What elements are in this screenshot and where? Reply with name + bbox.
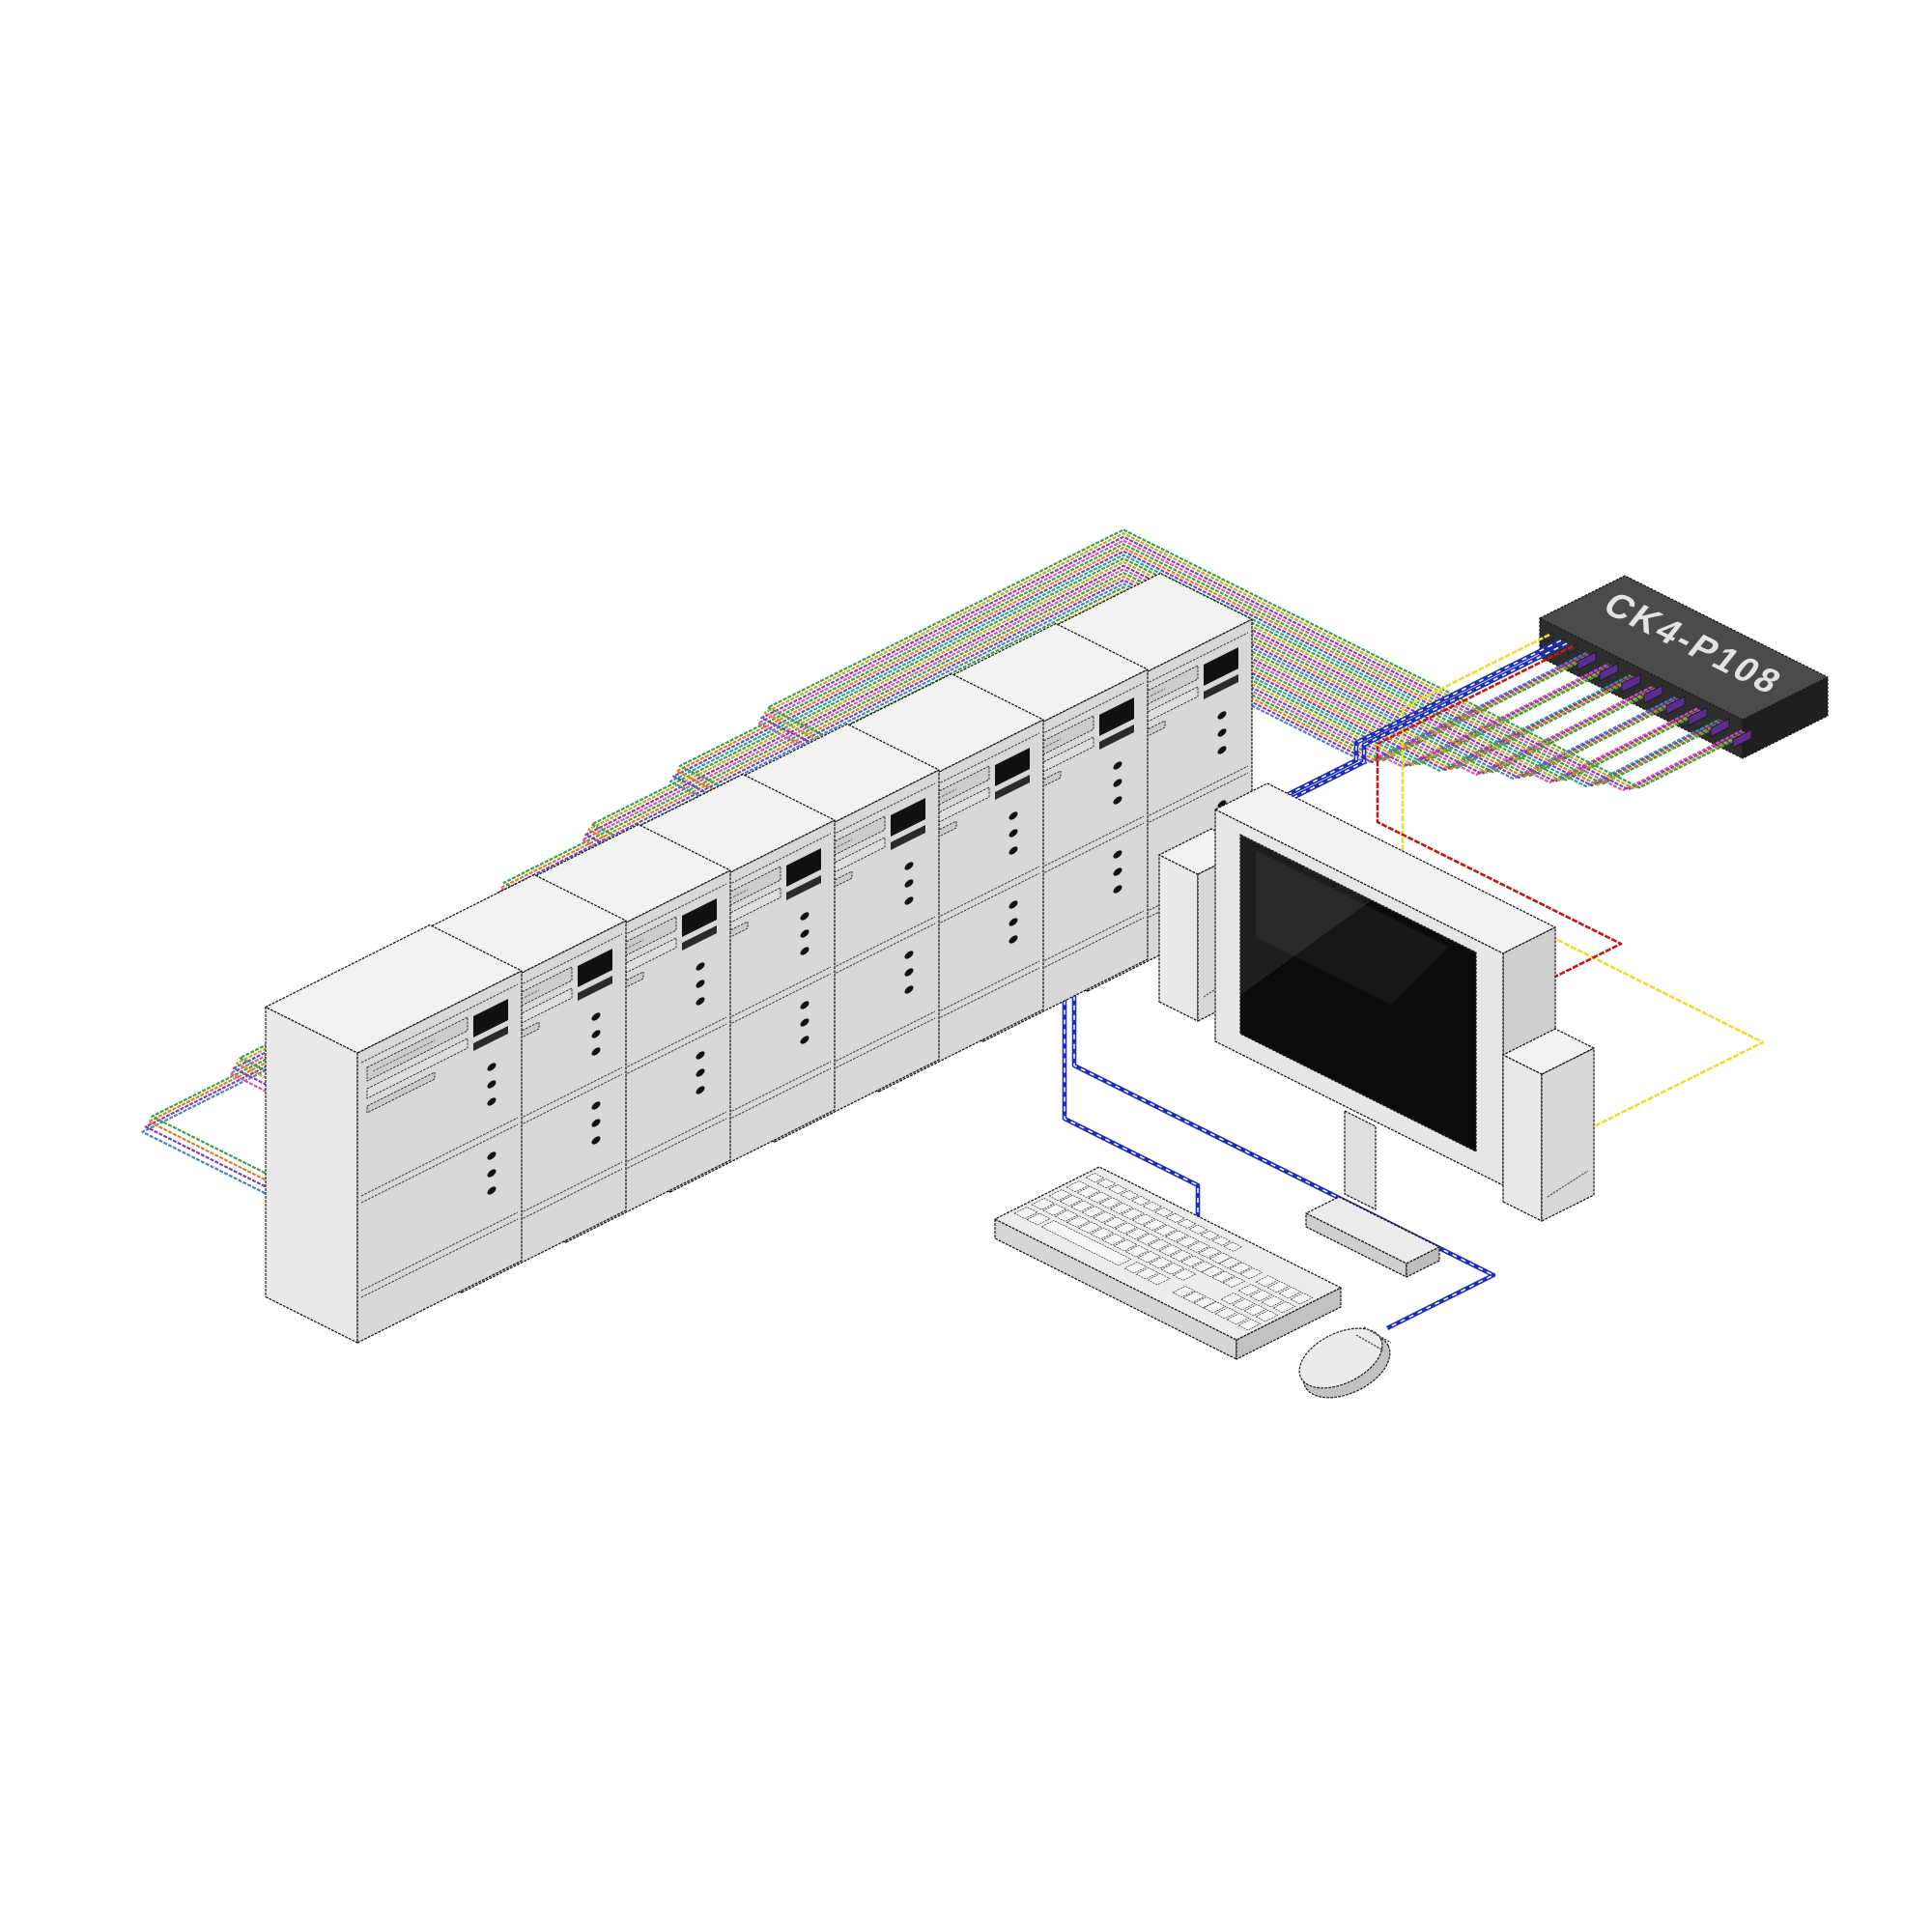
right-speaker (1503, 1029, 1594, 1221)
diagram-canvas: CK4-P108 (0, 0, 1932, 1932)
mouse (1290, 1316, 1400, 1410)
kvm-diagram: CK4-P108 (0, 0, 1932, 1932)
computer-tower-1 (266, 925, 522, 1344)
keyboard (995, 1167, 1341, 1359)
